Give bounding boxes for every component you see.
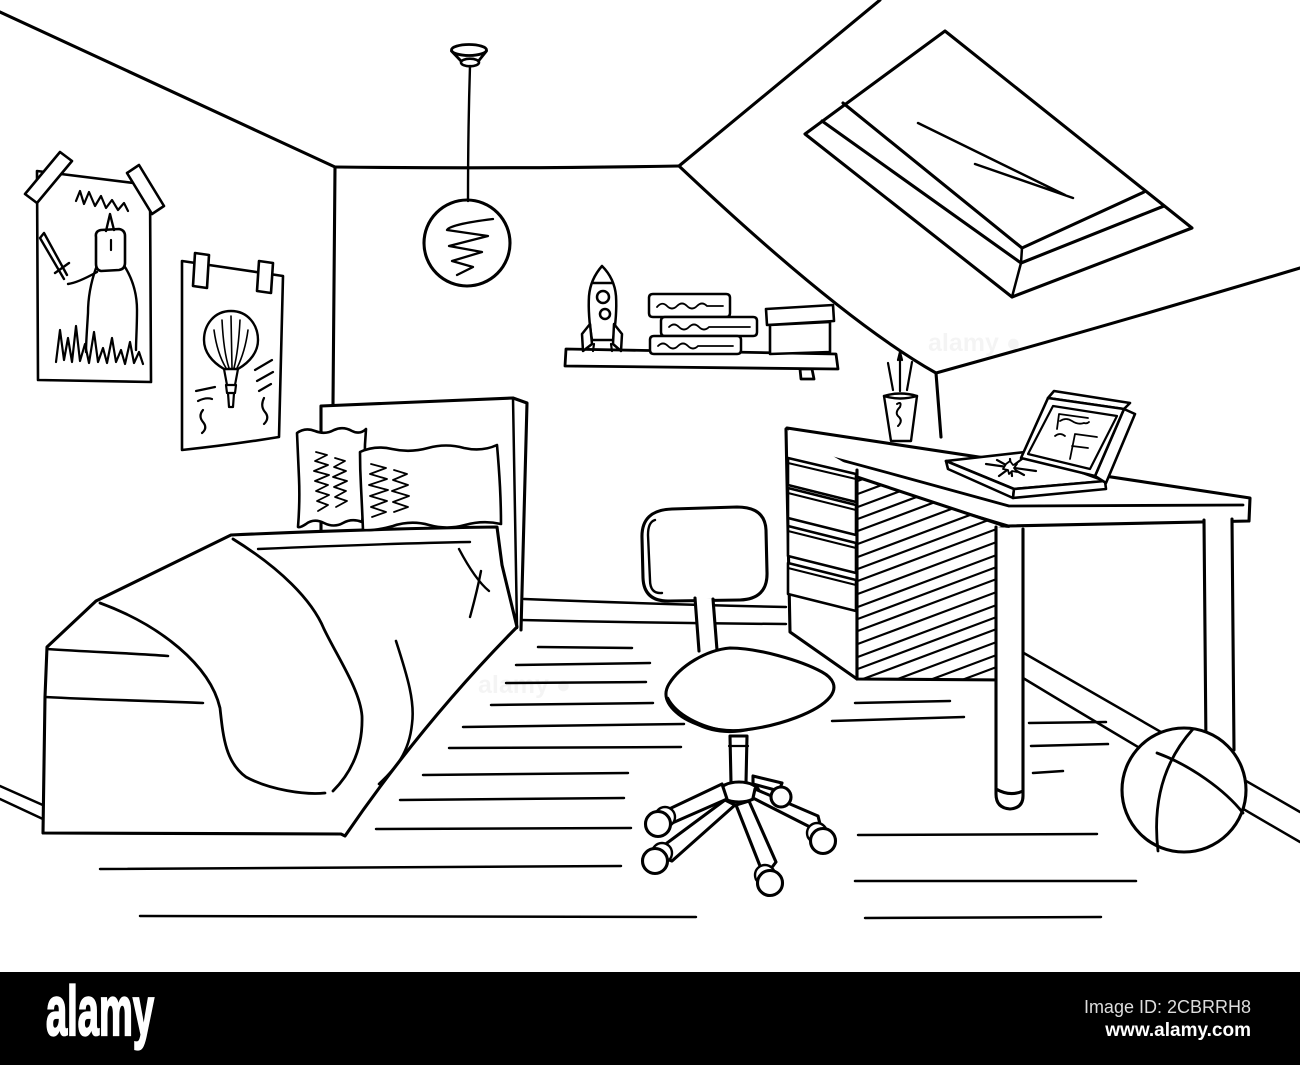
svg-text:alamy: alamy	[46, 972, 154, 1050]
svg-text:alamy ●: alamy ●	[478, 671, 571, 699]
svg-text:www.alamy.com: www.alamy.com	[1104, 1020, 1251, 1041]
svg-text:alamy ●: alamy ●	[928, 329, 1021, 357]
svg-text:Image ID: 2CBRRH8: Image ID: 2CBRRH8	[1084, 997, 1251, 1017]
